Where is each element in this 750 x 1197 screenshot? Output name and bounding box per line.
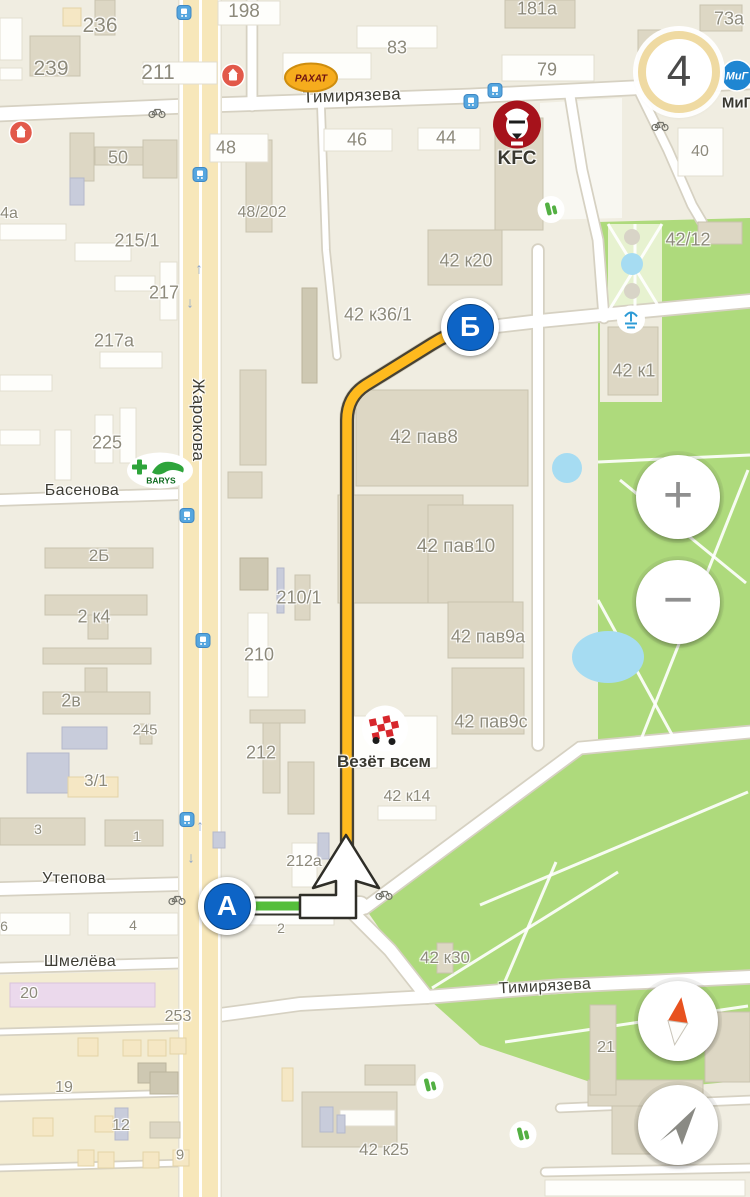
zoom-in-button[interactable]: + bbox=[636, 455, 720, 539]
plus-icon: + bbox=[663, 469, 693, 521]
map-count-badge-value: 4 bbox=[667, 47, 691, 97]
locate-button[interactable] bbox=[638, 1085, 718, 1165]
locate-arrow-icon bbox=[646, 1093, 710, 1157]
minus-icon: − bbox=[663, 574, 693, 626]
map-canvas[interactable]: ТимирязеваЖароковаБасеноваУтеповаШмелёва… bbox=[0, 0, 750, 1197]
zoom-out-button[interactable]: − bbox=[636, 560, 720, 644]
compass-needle-icon bbox=[646, 989, 710, 1053]
controls-layer: 4 + − bbox=[0, 0, 750, 1197]
compass-button[interactable] bbox=[638, 981, 718, 1061]
map-count-badge[interactable]: 4 bbox=[638, 31, 720, 113]
